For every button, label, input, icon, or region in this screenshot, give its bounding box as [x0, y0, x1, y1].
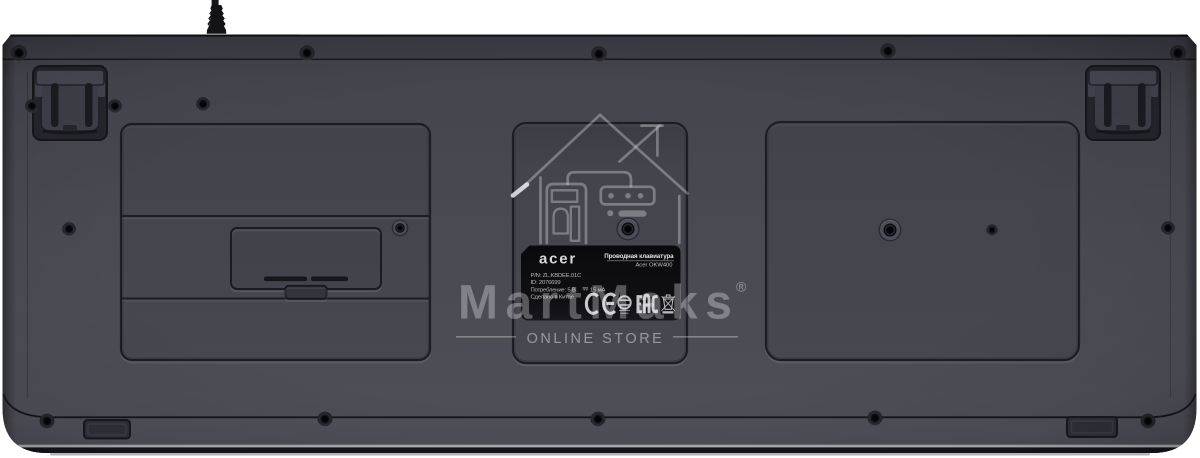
- svg-text:Проводная клавиатура: Проводная клавиатура: [604, 253, 674, 260]
- svg-text:ONLINE STORE: ONLINE STORE: [527, 331, 665, 347]
- svg-text:MartMaks: MartMaks: [458, 277, 739, 330]
- svg-text:acer: acer: [539, 250, 577, 267]
- svg-text:Acer OKW400: Acer OKW400: [635, 263, 672, 269]
- svg-text:®: ®: [736, 279, 747, 295]
